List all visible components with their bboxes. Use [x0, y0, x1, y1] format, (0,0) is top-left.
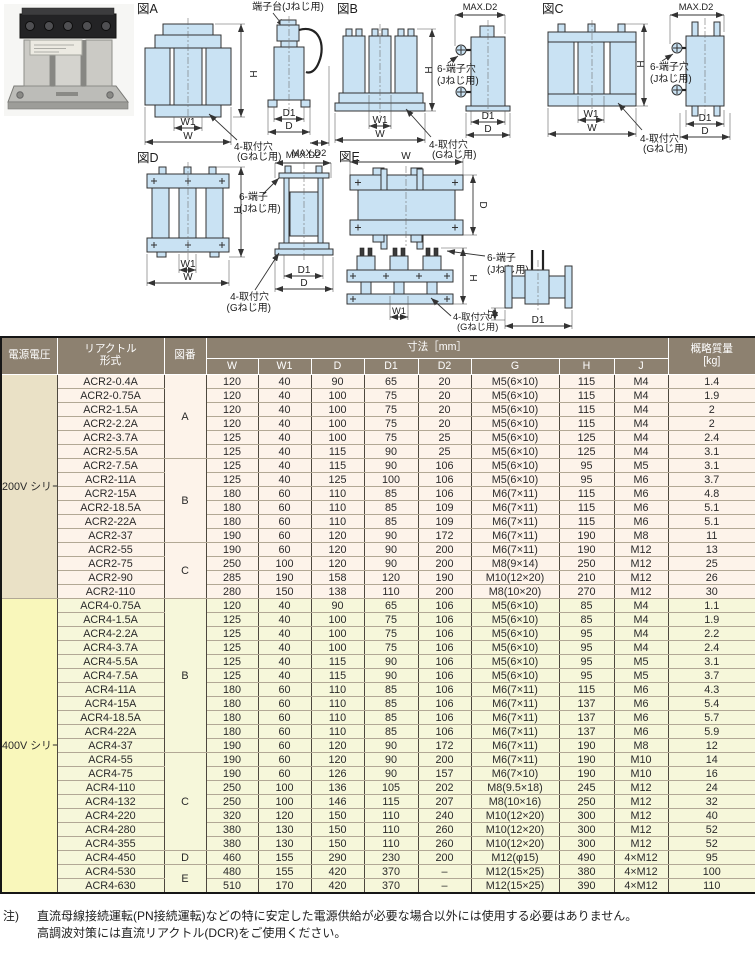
j-cell: M12 [614, 837, 668, 851]
w-cell: 120 [206, 599, 258, 613]
w-cell: 250 [206, 557, 258, 571]
w-cell: 120 [206, 403, 258, 417]
d-cell: 146 [311, 795, 364, 809]
weight-cell: 3.1 [668, 655, 755, 669]
j-cell: M4 [614, 613, 668, 627]
d1-cell: 65 [364, 375, 418, 389]
w1-cell: 40 [258, 669, 311, 683]
table-row: ACR4-15A1806011085106M6(7×11)137M65.4 [1, 697, 755, 711]
col-header-g: G [471, 359, 559, 375]
col-header-d: D [311, 359, 364, 375]
d1-cell: 85 [364, 501, 418, 515]
figure-b-front-view [335, 24, 425, 116]
model-cell: ACR4-450 [57, 851, 164, 865]
d1-cell: 85 [364, 487, 418, 501]
table-row: ACR4-5.5A1254011590106M5(6×10)95M53.1 [1, 655, 755, 669]
col-header-model: リアクトル 形式 [57, 337, 164, 375]
d2-cell: 106 [418, 725, 471, 739]
table-row: ACR4-371906012090172M6(7×11)190M812 [1, 739, 755, 753]
d1-cell: 105 [364, 781, 418, 795]
g-cell: M8(10×16) [471, 795, 559, 809]
d2-cell: 157 [418, 767, 471, 781]
weight-cell: 95 [668, 851, 755, 865]
w1-cell: 60 [258, 515, 311, 529]
weight-cell: 16 [668, 767, 755, 781]
model-cell: ACR4-5.5A [57, 655, 164, 669]
weight-cell: 2.4 [668, 431, 755, 445]
figure-d: 図D H W1 W [133, 148, 345, 323]
h-cell: 190 [559, 739, 614, 753]
model-cell: ACR4-1.5A [57, 613, 164, 627]
model-cell: ACR2-90 [57, 571, 164, 585]
g-cell: M8(10×20) [471, 585, 559, 599]
mount-hole-label2: (Gねじ用) [227, 302, 271, 314]
mount-hole-label: 4-取付穴 [453, 311, 489, 322]
d-cell: 110 [311, 487, 364, 501]
d2-cell: 109 [418, 515, 471, 529]
dimension-spec-table: 電源電圧 リアクトル 形式 図番 寸法［mm］ 概略質量 [kg] W W1 D… [0, 336, 755, 894]
j-cell: M6 [614, 501, 668, 515]
g-cell: M6(7×11) [471, 711, 559, 725]
h-cell: 95 [559, 655, 614, 669]
col-header-weight: 概略質量 [kg] [668, 337, 755, 375]
j-cell: M6 [614, 515, 668, 529]
d2-cell: 106 [418, 473, 471, 487]
d1-cell: 90 [364, 655, 418, 669]
d1-cell: 370 [364, 865, 418, 879]
w1-cell: 170 [258, 879, 311, 894]
d-cell: 110 [311, 711, 364, 725]
g-cell: M6(7×11) [471, 543, 559, 557]
g-cell: M10(12×20) [471, 571, 559, 585]
figure-ref-cell: B [164, 599, 206, 753]
note-label: 注) [3, 908, 37, 942]
j-cell: M5 [614, 459, 668, 473]
d1-cell: 90 [364, 557, 418, 571]
d-cell: 150 [311, 837, 364, 851]
h-cell: 115 [559, 501, 614, 515]
table-row: ACR4-2.2A1254010075106M5(6×10)95M42.2 [1, 627, 755, 641]
d1-cell: 115 [364, 795, 418, 809]
w1-cell: 40 [258, 459, 311, 473]
model-cell: ACR4-18.5A [57, 711, 164, 725]
dim-label-d: D [477, 201, 488, 208]
d-cell: 150 [311, 809, 364, 823]
d1-cell: 85 [364, 725, 418, 739]
w1-cell: 40 [258, 431, 311, 445]
table-row: ACR2-5.5A125401159025M5(6×10)125M43.1 [1, 445, 755, 459]
g-cell: M5(6×10) [471, 641, 559, 655]
j-cell: M12 [614, 543, 668, 557]
col-header-voltage: 電源電圧 [1, 337, 57, 375]
j-cell: M4 [614, 389, 668, 403]
w1-cell: 155 [258, 851, 311, 865]
weight-cell: 3.1 [668, 445, 755, 459]
table-row: ACR4-11A1806011085106M6(7×11)115M64.3 [1, 683, 755, 697]
model-cell: ACR2-18.5A [57, 501, 164, 515]
d-cell: 110 [311, 683, 364, 697]
dim-label-d: D [285, 121, 292, 132]
d1-cell: 90 [364, 739, 418, 753]
d2-cell: 106 [418, 641, 471, 655]
terminal-hole-label2: (Jねじ用) [437, 75, 479, 87]
h-cell: 250 [559, 557, 614, 571]
d-cell: 420 [311, 879, 364, 894]
weight-cell: 30 [668, 585, 755, 599]
figure-c-title: 図C [542, 2, 564, 16]
weight-cell: 2 [668, 403, 755, 417]
figure-d-side-view [275, 162, 333, 260]
weight-cell: 5.1 [668, 515, 755, 529]
d1-cell: 75 [364, 627, 418, 641]
d2-cell: 207 [418, 795, 471, 809]
weight-cell: 5.9 [668, 725, 755, 739]
weight-cell: 26 [668, 571, 755, 585]
w-cell: 480 [206, 865, 258, 879]
weight-cell: 3.7 [668, 473, 755, 487]
w1-cell: 40 [258, 445, 311, 459]
j-cell: M6 [614, 487, 668, 501]
model-cell: ACR4-530 [57, 865, 164, 879]
d-cell: 150 [311, 823, 364, 837]
table-row: ACR2-0.75A120401007520M5(6×10)115M41.9 [1, 389, 755, 403]
j-cell: M4 [614, 599, 668, 613]
d1-cell: 90 [364, 529, 418, 543]
h-cell: 125 [559, 445, 614, 459]
terminal-label: 6-端子 [487, 251, 516, 264]
d-cell: 100 [311, 389, 364, 403]
footnotes: 注) 直流母線接続運転(PN接続運転)などの特に安定した電源供給が必要な場合以外… [3, 908, 753, 942]
weight-cell: 24 [668, 781, 755, 795]
d-cell: 100 [311, 627, 364, 641]
model-cell: ACR4-22A [57, 725, 164, 739]
table-row: ACR2-2.2A120401007520M5(6×10)115M42 [1, 417, 755, 431]
w1-cell: 40 [258, 655, 311, 669]
d-cell: 126 [311, 767, 364, 781]
weight-cell: 25 [668, 557, 755, 571]
j-cell: M4 [614, 375, 668, 389]
table-row: ACR4-110250100136105202M8(9.5×18)245M122… [1, 781, 755, 795]
model-cell: ACR4-11A [57, 683, 164, 697]
dim-label-w: W [587, 123, 597, 134]
d1-cell: 90 [364, 669, 418, 683]
dim-label-maxd2: MAX.D2 [679, 2, 714, 12]
model-cell: ACR2-55 [57, 543, 164, 557]
w1-cell: 60 [258, 683, 311, 697]
g-cell: M5(6×10) [471, 403, 559, 417]
mount-hole-label2: (Gねじ用) [457, 322, 498, 332]
w1-cell: 120 [258, 809, 311, 823]
g-cell: M8(9×14) [471, 557, 559, 571]
figure-d-title: 図D [137, 151, 159, 165]
col-header-dims: 寸法［mm］ [206, 337, 668, 359]
w1-cell: 60 [258, 487, 311, 501]
table-row: ACR2-3.7A125401007525M5(6×10)125M42.4 [1, 431, 755, 445]
j-cell: M12 [614, 823, 668, 837]
d-cell: 115 [311, 459, 364, 473]
w1-cell: 40 [258, 403, 311, 417]
d2-cell: 240 [418, 809, 471, 823]
g-cell: M12(φ15) [471, 851, 559, 865]
dim-label-d1: D1 [283, 108, 296, 119]
model-cell: ACR4-3.7A [57, 641, 164, 655]
d1-cell: 90 [364, 459, 418, 473]
table-row: ACR4-132250100146115207M8(10×16)250M1232 [1, 795, 755, 809]
d-cell: 110 [311, 515, 364, 529]
w1-cell: 40 [258, 613, 311, 627]
figure-ref-cell: C [164, 543, 206, 599]
j-cell: M12 [614, 585, 668, 599]
d1-cell: 370 [364, 879, 418, 894]
d1-cell: 75 [364, 431, 418, 445]
weight-cell: 52 [668, 837, 755, 851]
j-cell: M4 [614, 627, 668, 641]
g-cell: M5(6×10) [471, 445, 559, 459]
g-cell: M6(7×11) [471, 725, 559, 739]
col-header-w1: W1 [258, 359, 311, 375]
weight-cell: 13 [668, 543, 755, 557]
g-cell: M6(7×11) [471, 501, 559, 515]
note-line-2: 高調波対策には直流リアクトル(DCR)をご使用ください。 [37, 925, 637, 942]
weight-cell: 4.8 [668, 487, 755, 501]
table-row: ACR2-11A12540125100106M5(6×10)95M63.7 [1, 473, 755, 487]
g-cell: M5(6×10) [471, 459, 559, 473]
d-cell: 100 [311, 613, 364, 627]
col-header-h: H [559, 359, 614, 375]
w-cell: 510 [206, 879, 258, 894]
j-cell: 4×M12 [614, 865, 668, 879]
g-cell: M10(12×20) [471, 809, 559, 823]
weight-cell: 52 [668, 823, 755, 837]
h-cell: 85 [559, 599, 614, 613]
terminal-block-label: 端子台(Jねじ用) [252, 0, 324, 13]
w1-cell: 130 [258, 823, 311, 837]
dim-label-maxd2: MAX.D2 [286, 150, 321, 160]
j-cell: 4×M12 [614, 879, 668, 894]
d-cell: 90 [311, 599, 364, 613]
figure-b: 図B H W1 W 4-取付穴 (Gねじ用) MAX.D2 [333, 0, 538, 162]
model-cell: ACR2-37 [57, 529, 164, 543]
h-cell: 95 [559, 459, 614, 473]
table-row: ACR4-22A1806011085106M6(7×11)137M65.9 [1, 725, 755, 739]
dim-label-d1: D1 [699, 113, 712, 124]
j-cell: M12 [614, 795, 668, 809]
dim-label-w1: W1 [181, 259, 196, 270]
dim-label-d1: D1 [532, 315, 545, 326]
d1-cell: 85 [364, 683, 418, 697]
dim-label-h: H [467, 274, 478, 281]
d1-cell: 75 [364, 417, 418, 431]
d2-cell: 106 [418, 711, 471, 725]
w-cell: 125 [206, 641, 258, 655]
table-row: ACR2-371906012090172M6(7×11)190M811 [1, 529, 755, 543]
figure-c-front-view [548, 20, 636, 112]
w-cell: 285 [206, 571, 258, 585]
table-row: ACR2-1.5A120401007520M5(6×10)115M42 [1, 403, 755, 417]
note-lines: 直流母線接続運転(PN接続運転)などの特に安定した電源供給が必要な場合以外には使… [37, 908, 637, 942]
mount-hole-label2: (Gねじ用) [643, 143, 687, 155]
d1-cell: 75 [364, 641, 418, 655]
g-cell: M6(7×10) [471, 767, 559, 781]
j-cell: M12 [614, 809, 668, 823]
w-cell: 125 [206, 445, 258, 459]
g-cell: M6(7×11) [471, 753, 559, 767]
table-row: ACR2-22A1806011085109M6(7×11)115M65.1 [1, 515, 755, 529]
figure-e-top-view [350, 166, 463, 249]
h-cell: 390 [559, 879, 614, 894]
h-cell: 115 [559, 375, 614, 389]
weight-cell: 32 [668, 795, 755, 809]
table-row: ACR4-1.5A1254010075106M5(6×10)85M41.9 [1, 613, 755, 627]
w1-cell: 155 [258, 865, 311, 879]
weight-cell: 100 [668, 865, 755, 879]
g-cell: M5(6×10) [471, 417, 559, 431]
w1-cell: 40 [258, 473, 311, 487]
g-cell: M5(6×10) [471, 375, 559, 389]
reactor-product-photo [4, 4, 134, 116]
d2-cell: 106 [418, 613, 471, 627]
weight-cell: 1.9 [668, 389, 755, 403]
d-cell: 158 [311, 571, 364, 585]
d2-cell: 106 [418, 669, 471, 683]
d-cell: 136 [311, 781, 364, 795]
j-cell: M4 [614, 445, 668, 459]
h-cell: 115 [559, 417, 614, 431]
d-cell: 110 [311, 501, 364, 515]
d-cell: 120 [311, 753, 364, 767]
table-row: ACR4-355380130150110260M10(12×20)300M125… [1, 837, 755, 851]
model-cell: ACR4-220 [57, 809, 164, 823]
h-cell: 190 [559, 767, 614, 781]
d2-cell: 200 [418, 585, 471, 599]
d2-cell: 20 [418, 389, 471, 403]
d1-cell: 90 [364, 445, 418, 459]
table-row: ACR2-7.5AB1254011590106M5(6×10)95M53.1 [1, 459, 755, 473]
w-cell: 125 [206, 669, 258, 683]
h-cell: 210 [559, 571, 614, 585]
d2-cell: 106 [418, 599, 471, 613]
j-cell: M6 [614, 725, 668, 739]
d-cell: 115 [311, 655, 364, 669]
w-cell: 190 [206, 753, 258, 767]
w-cell: 120 [206, 389, 258, 403]
spec-table-body: 200V シリーズACR2-0.4AA12040906520M5(6×10)11… [1, 375, 755, 894]
w-cell: 190 [206, 767, 258, 781]
d1-cell: 120 [364, 571, 418, 585]
j-cell: M8 [614, 739, 668, 753]
d-cell: 100 [311, 431, 364, 445]
w-cell: 380 [206, 823, 258, 837]
w1-cell: 60 [258, 543, 311, 557]
h-cell: 137 [559, 725, 614, 739]
weight-cell: 2 [668, 417, 755, 431]
h-cell: 300 [559, 837, 614, 851]
g-cell: M5(6×10) [471, 389, 559, 403]
weight-cell: 110 [668, 879, 755, 894]
dim-label-base15: 15 [486, 309, 496, 319]
d2-cell: 106 [418, 627, 471, 641]
w-cell: 380 [206, 837, 258, 851]
dim-label-h: H [422, 66, 433, 73]
w-cell: 120 [206, 417, 258, 431]
d1-cell: 90 [364, 753, 418, 767]
model-cell: ACR2-75 [57, 557, 164, 571]
w1-cell: 60 [258, 529, 311, 543]
weight-cell: 1.4 [668, 375, 755, 389]
g-cell: M5(6×10) [471, 613, 559, 627]
g-cell: M6(7×11) [471, 683, 559, 697]
d1-cell: 100 [364, 473, 418, 487]
d2-cell: 109 [418, 501, 471, 515]
w-cell: 190 [206, 529, 258, 543]
d2-cell: 25 [418, 431, 471, 445]
terminal-hole-label2: (Jねじ用) [650, 73, 692, 85]
weight-cell: 1.9 [668, 613, 755, 627]
d1-cell: 110 [364, 823, 418, 837]
j-cell: M5 [614, 669, 668, 683]
d2-cell: 25 [418, 445, 471, 459]
w1-cell: 60 [258, 739, 311, 753]
table-row: ACR2-18.5A1806011085109M6(7×11)115M65.1 [1, 501, 755, 515]
d1-cell: 90 [364, 543, 418, 557]
terminal-hole-label: 6-端子穴 [650, 60, 689, 73]
d2-cell: 202 [418, 781, 471, 795]
d1-cell: 85 [364, 515, 418, 529]
w-cell: 250 [206, 781, 258, 795]
w1-cell: 40 [258, 641, 311, 655]
model-cell: ACR4-2.2A [57, 627, 164, 641]
h-cell: 300 [559, 823, 614, 837]
d2-cell: – [418, 879, 471, 894]
w1-cell: 100 [258, 557, 311, 571]
terminal-label: 6-端子 [239, 190, 268, 203]
g-cell: M12(15×25) [471, 879, 559, 894]
w-cell: 125 [206, 627, 258, 641]
d2-cell: 20 [418, 375, 471, 389]
g-cell: M5(6×10) [471, 627, 559, 641]
weight-cell: 4.3 [668, 683, 755, 697]
j-cell: M4 [614, 431, 668, 445]
figure-ref-cell: C [164, 753, 206, 851]
dim-label-w: W [183, 272, 193, 283]
d2-cell: 106 [418, 459, 471, 473]
d2-cell: 260 [418, 837, 471, 851]
d1-cell: 110 [364, 809, 418, 823]
table-row: ACR4-220320120150110240M10(12×20)300M124… [1, 809, 755, 823]
dim-label-d: D [484, 124, 491, 135]
d-cell: 290 [311, 851, 364, 865]
d-cell: 100 [311, 641, 364, 655]
weight-cell: 12 [668, 739, 755, 753]
w-cell: 180 [206, 515, 258, 529]
model-cell: ACR2-15A [57, 487, 164, 501]
h-cell: 95 [559, 641, 614, 655]
w1-cell: 40 [258, 599, 311, 613]
w-cell: 320 [206, 809, 258, 823]
g-cell: M6(7×11) [471, 739, 559, 753]
terminal-label2: (Jねじ用) [239, 203, 281, 215]
model-cell: ACR2-1.5A [57, 403, 164, 417]
w1-cell: 60 [258, 697, 311, 711]
figure-e: 図E W D [335, 148, 582, 332]
g-cell: M6(7×11) [471, 529, 559, 543]
model-cell: ACR2-0.4A [57, 375, 164, 389]
weight-cell: 5.1 [668, 501, 755, 515]
mount-hole-label: 4-取付穴 [230, 290, 269, 303]
d-cell: 90 [311, 375, 364, 389]
weight-cell: 40 [668, 809, 755, 823]
dim-label-w: W [375, 129, 385, 140]
